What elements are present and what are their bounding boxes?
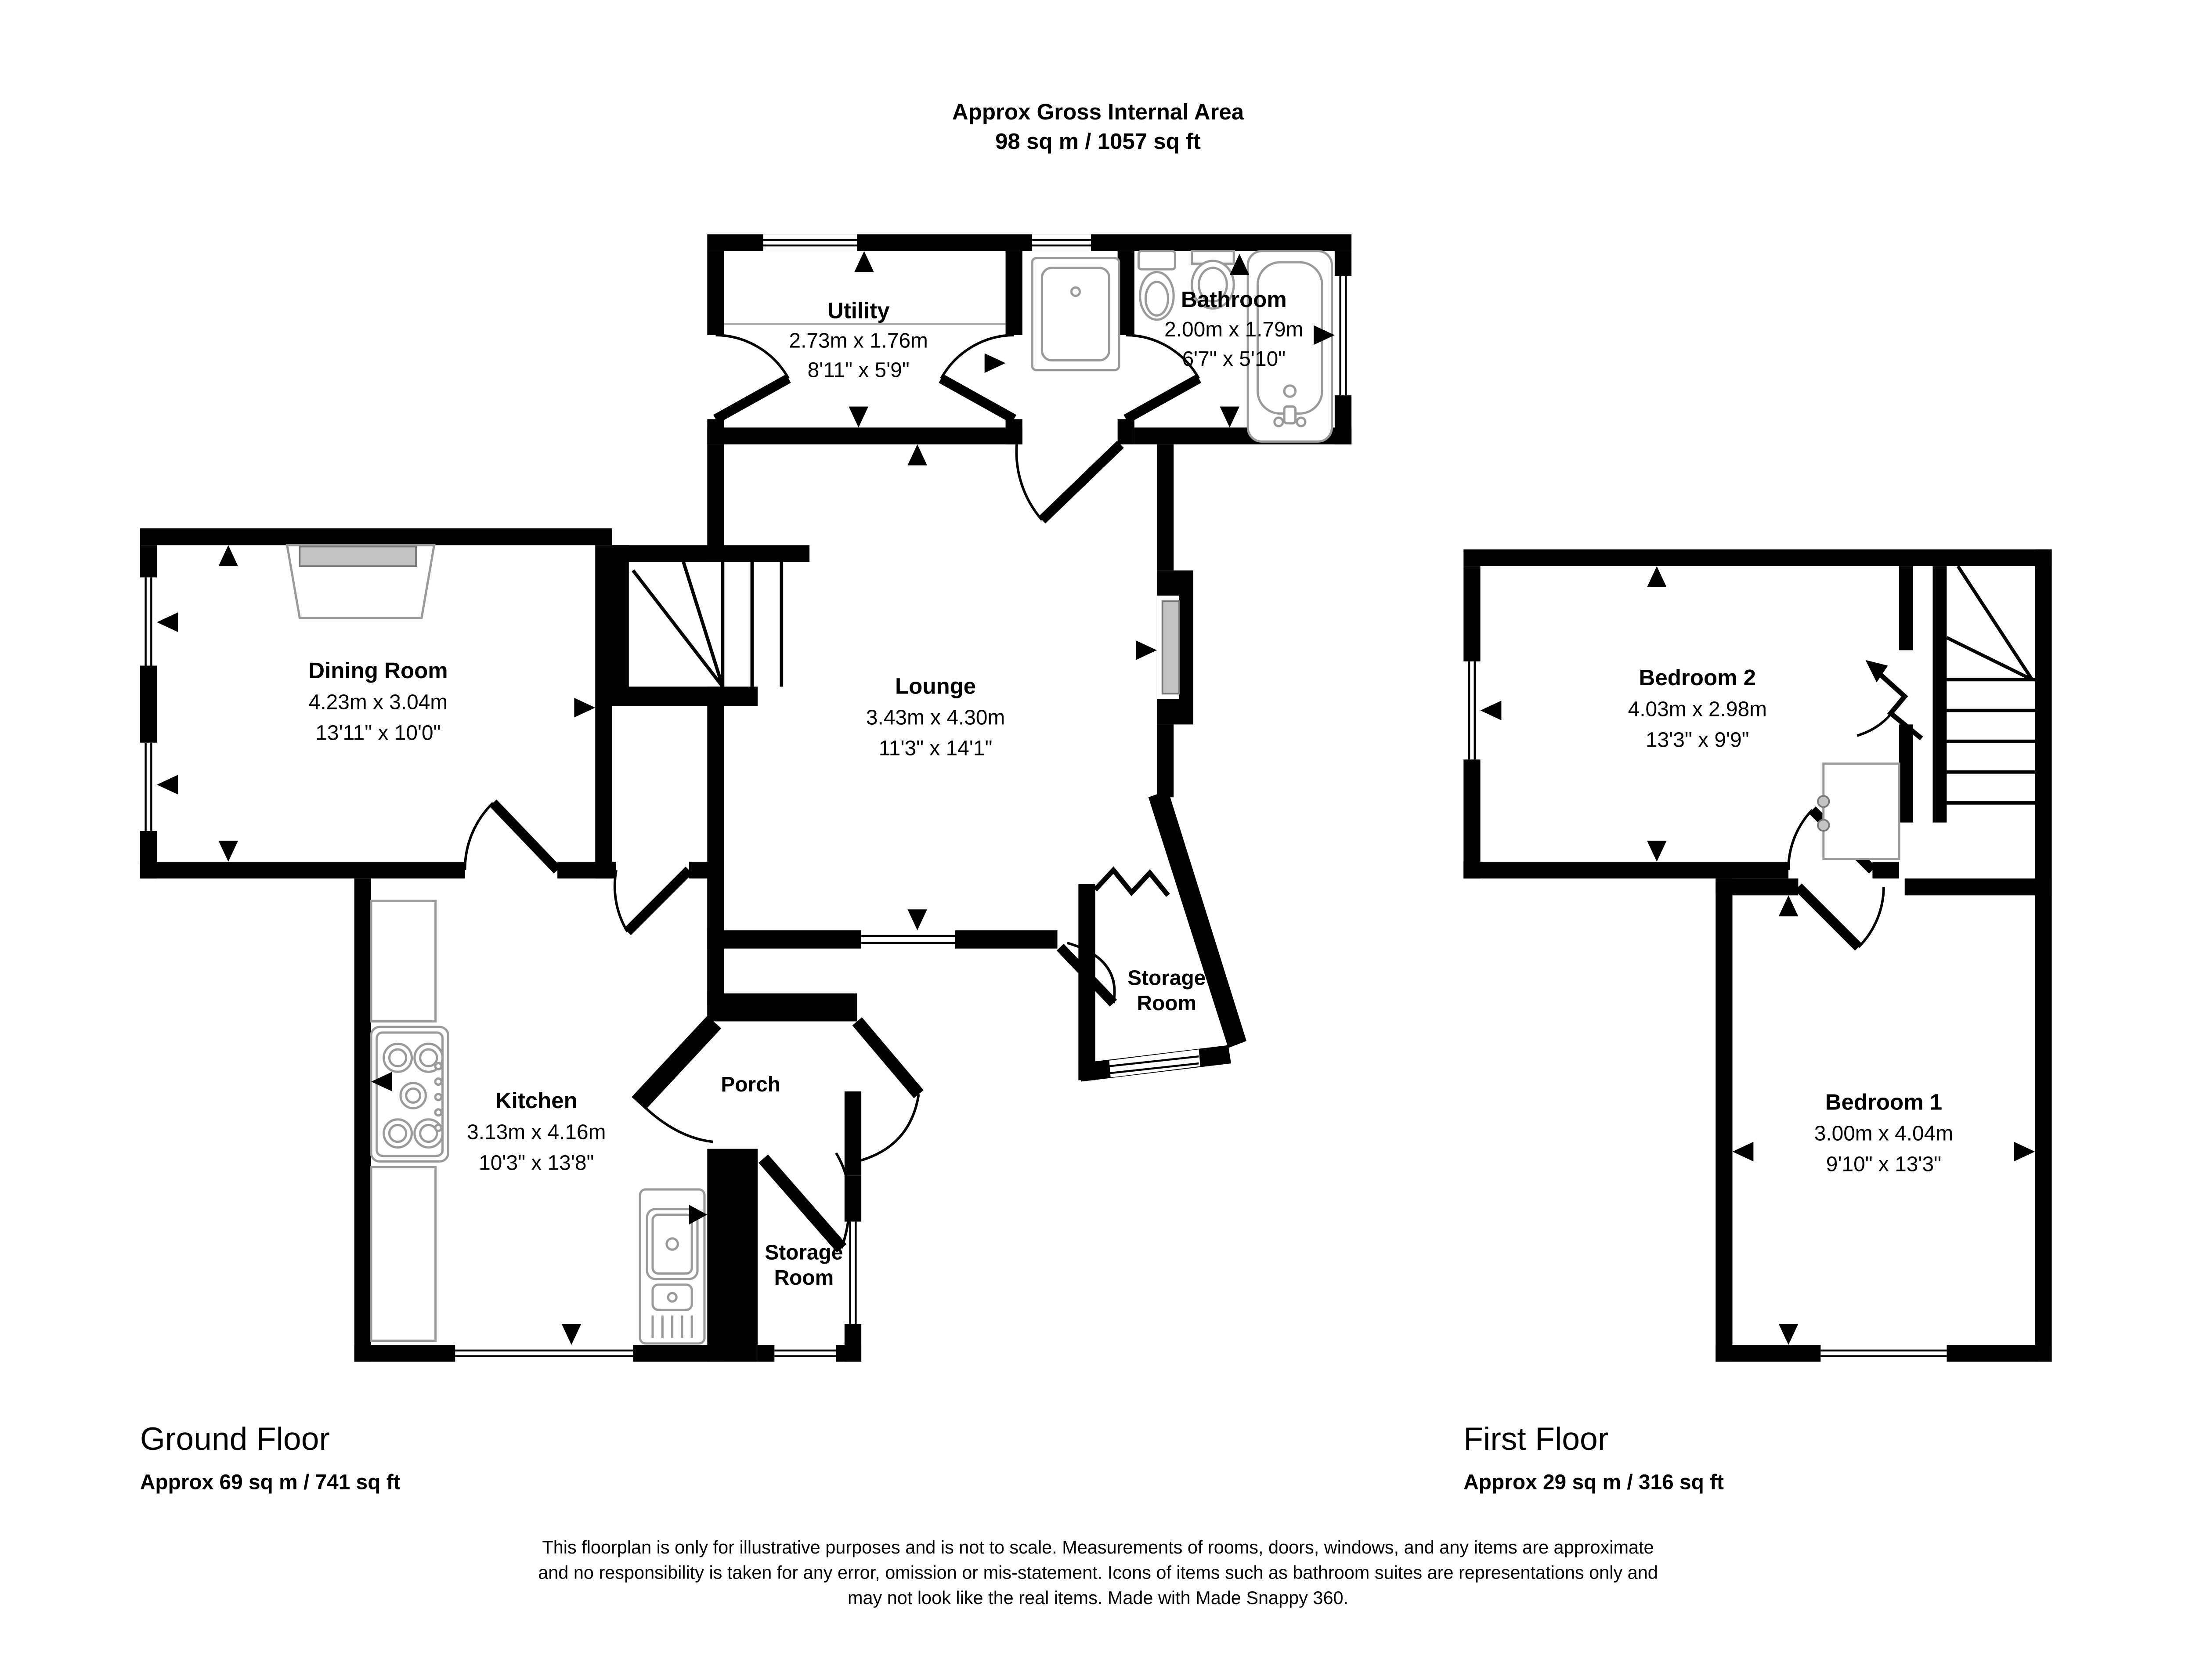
hall-window [1032, 234, 1091, 251]
arrow-down-icon [1220, 407, 1239, 428]
toilet-icon [1138, 251, 1175, 320]
first-floor-plan: Bedroom 2 4.03m x 2.98m 13'3" x 9'9" Bed… [1463, 549, 2052, 1362]
ground-fixtures [287, 251, 1332, 1344]
porch-front-door [632, 1016, 721, 1142]
bedroom2-metric: 4.03m x 2.98m [1628, 697, 1767, 721]
storage-right-label-2: Room [1137, 992, 1197, 1015]
kitchen-metric: 3.13m x 4.16m [467, 1120, 606, 1144]
bedroom1-metric: 3.00m x 4.04m [1814, 1122, 1953, 1145]
storage-bottom-window-bottom [774, 1345, 836, 1362]
arrow-down-icon [218, 841, 238, 862]
bedroom2-imperial: 13'3" x 9'9" [1646, 728, 1749, 751]
dining-imperial: 13'11" x 10'0" [315, 722, 441, 745]
utility-left-door [715, 335, 788, 419]
ground-floor-plan: Utility 2.73m x 1.76m 8'11" x 5'9" Bathr… [140, 234, 1351, 1362]
first-floor-area: Approx 29 sq m / 316 sq ft [1463, 1470, 1724, 1494]
arrow-up-icon [854, 251, 874, 272]
utility-window [763, 234, 857, 251]
bathroom-imperial: 6'7" x 5'10" [1182, 347, 1286, 371]
bedroom1-window [1820, 1345, 1947, 1362]
hall-lounge-door [1016, 444, 1120, 520]
ground-floor-area: Approx 69 sq m / 741 sq ft [140, 1470, 401, 1494]
dining-kitchen-door [465, 803, 557, 870]
lounge-window [861, 930, 955, 948]
bathroom-label: Bathroom [1181, 287, 1287, 312]
utility-metric: 2.73m x 1.76m [789, 329, 928, 353]
first-fixtures [1818, 764, 1899, 859]
first-floor-caption: First Floor [1463, 1421, 1608, 1457]
shower-tray-icon [1032, 258, 1119, 370]
first-arrows [1481, 566, 2035, 1345]
storage-bottom-label-2: Room [774, 1266, 834, 1290]
arrow-left-icon [157, 775, 178, 795]
arrow-down-icon [1779, 1324, 1799, 1345]
lounge-imperial: 11'3" x 14'1" [879, 737, 993, 760]
arrow-down-icon [1647, 841, 1667, 862]
arrow-right-icon [2014, 1142, 2035, 1162]
bathtub-icon [1248, 251, 1332, 442]
kitchen-imperial: 10'3" x 13'8" [479, 1151, 594, 1174]
hall-kitchen-door [615, 870, 689, 932]
lounge-metric: 3.43m x 4.30m [866, 706, 1005, 729]
porch-label: Porch [721, 1073, 780, 1096]
kitchen-counter-upper [371, 901, 436, 1021]
bedroom1-door [1798, 887, 1884, 947]
porch-lounge-door [857, 1021, 919, 1161]
floorplan: Approx Gross Internal Area 98 sq m / 105… [0, 0, 2196, 1680]
disclaimer-line-2: and no responsibility is taken for any e… [538, 1562, 1658, 1583]
dining-window-lower [140, 743, 157, 831]
bedroom1-imperial: 9'10" x 13'3" [1826, 1153, 1941, 1176]
dining-metric: 4.23m x 3.04m [309, 690, 448, 714]
dining-window-upper [140, 578, 157, 666]
porch-storage-door [763, 1153, 850, 1248]
title-line-2: 98 sq m / 1057 sq ft [995, 129, 1201, 154]
storage-bottom-window-side [845, 1221, 861, 1324]
arrow-left-icon [1733, 1142, 1754, 1162]
bedroom2-label: Bedroom 2 [1639, 665, 1756, 690]
storage-right-label-1: Storage [1127, 967, 1206, 990]
storage-bottom-label-1: Storage [765, 1241, 843, 1265]
first-walls [1463, 549, 2052, 1362]
bedroom2-window [1463, 661, 1480, 759]
kitchen-window [455, 1345, 633, 1362]
ground-stairs [633, 562, 781, 687]
cupboard-icon [1818, 764, 1899, 859]
header: Approx Gross Internal Area 98 sq m / 105… [952, 99, 1244, 154]
disclaimer-line-1: This floorplan is only for illustrative … [542, 1537, 1654, 1557]
arrow-right-icon [574, 698, 595, 718]
arrow-up-icon [1647, 566, 1667, 587]
bedroom1-label: Bedroom 1 [1825, 1089, 1942, 1114]
arrow-up-icon [218, 545, 238, 566]
arrow-down-icon [562, 1324, 582, 1345]
kitchen-label: Kitchen [495, 1088, 578, 1113]
lounge-fireplace-icon [1157, 596, 1179, 699]
bathroom-metric: 2.00m x 1.79m [1164, 318, 1303, 341]
disclaimer-line-3: may not look like the real items. Made w… [848, 1587, 1348, 1608]
title-line-1: Approx Gross Internal Area [952, 99, 1244, 124]
dining-fireplace-icon [287, 545, 434, 618]
hob-icon [371, 1027, 448, 1161]
utility-imperial: 8'11" x 5'9" [808, 359, 910, 382]
disclaimer: This floorplan is only for illustrative … [538, 1537, 1658, 1608]
arrow-up-icon [1779, 895, 1799, 916]
bathroom-window [1335, 276, 1351, 395]
storage-right-break [1095, 870, 1168, 895]
utility-right-door [941, 335, 1014, 419]
dining-label: Dining Room [308, 658, 448, 683]
arrow-down-icon [849, 407, 868, 428]
arrow-left-icon [157, 612, 178, 632]
arrow-left-icon [1481, 701, 1502, 720]
arrow-right-icon [1136, 640, 1157, 660]
storage-right-window [1109, 1049, 1200, 1077]
lounge-label: Lounge [895, 673, 976, 698]
ground-floor-caption: Ground Floor [140, 1421, 330, 1457]
utility-label: Utility [827, 298, 890, 323]
arrow-right-icon [985, 353, 1006, 373]
first-stairs [1947, 566, 2035, 803]
arrow-down-icon [907, 909, 927, 930]
floor-captions: Ground Floor Approx 69 sq m / 741 sq ft … [140, 1421, 1724, 1494]
kitchen-counter-lower [371, 1167, 436, 1340]
arrow-up-icon [907, 444, 927, 466]
